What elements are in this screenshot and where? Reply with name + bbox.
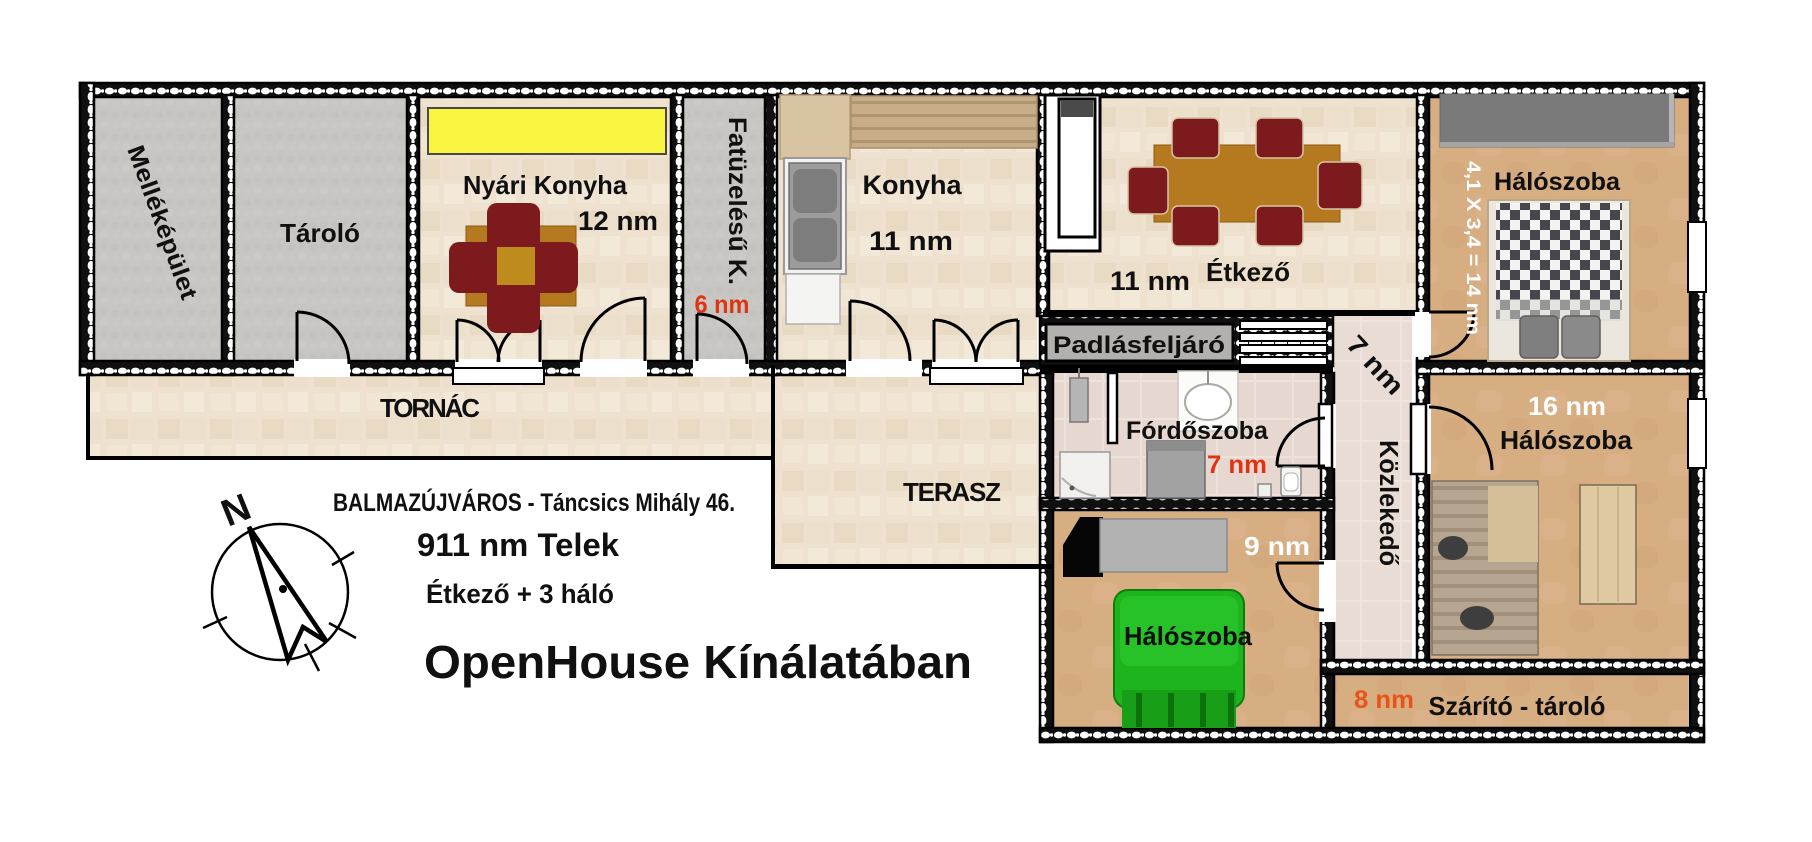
svg-text:Konyha: Konyha	[863, 170, 963, 200]
svg-text:Hálószoba: Hálószoba	[1124, 621, 1253, 651]
svg-text:11 nm: 11 nm	[869, 226, 953, 256]
svg-text:6 nm: 6 nm	[695, 291, 750, 319]
svg-text:Étkező + 3 háló: Étkező + 3 háló	[426, 578, 614, 609]
svg-text:TERASZ: TERASZ	[903, 477, 1001, 507]
svg-text:Nyári Konyha: Nyári Konyha	[463, 170, 628, 200]
svg-text:Hálószoba: Hálószoba	[1494, 168, 1621, 196]
svg-text:TORNÁC: TORNÁC	[380, 393, 480, 423]
svg-text:Étkező: Étkező	[1206, 257, 1290, 287]
svg-text:OpenHouse Kínálatában: OpenHouse Kínálatában	[424, 636, 972, 688]
svg-text:16 nm: 16 nm	[1528, 391, 1606, 421]
svg-text:Padlásfeljáró: Padlásfeljáró	[1053, 332, 1225, 359]
svg-text:11 nm: 11 nm	[1110, 266, 1190, 296]
svg-text:4,1 X 3,4 = 14 nm: 4,1 X 3,4 = 14 nm	[1462, 161, 1483, 335]
svg-text:7 nm: 7 nm	[1207, 451, 1267, 479]
svg-text:911 nm Telek: 911 nm Telek	[417, 527, 619, 563]
svg-text:Fatüzelésű K.: Fatüzelésű K.	[723, 117, 751, 285]
svg-text:Hálószoba: Hálószoba	[1500, 425, 1633, 455]
svg-text:Szárító - tároló: Szárító - tároló	[1429, 691, 1606, 721]
svg-text:9 nm: 9 nm	[1244, 531, 1310, 561]
svg-text:Közlekedő: Közlekedő	[1374, 440, 1404, 566]
svg-text:Tároló: Tároló	[280, 218, 360, 248]
svg-text:12 nm: 12 nm	[578, 206, 658, 236]
svg-text:8 nm: 8 nm	[1354, 686, 1414, 714]
svg-text:BALMAZÚJVÁROS - Táncsics Mihál: BALMAZÚJVÁROS - Táncsics Mihály 46.	[333, 487, 735, 517]
svg-text:Fórdőszoba: Fórdőszoba	[1126, 417, 1269, 445]
